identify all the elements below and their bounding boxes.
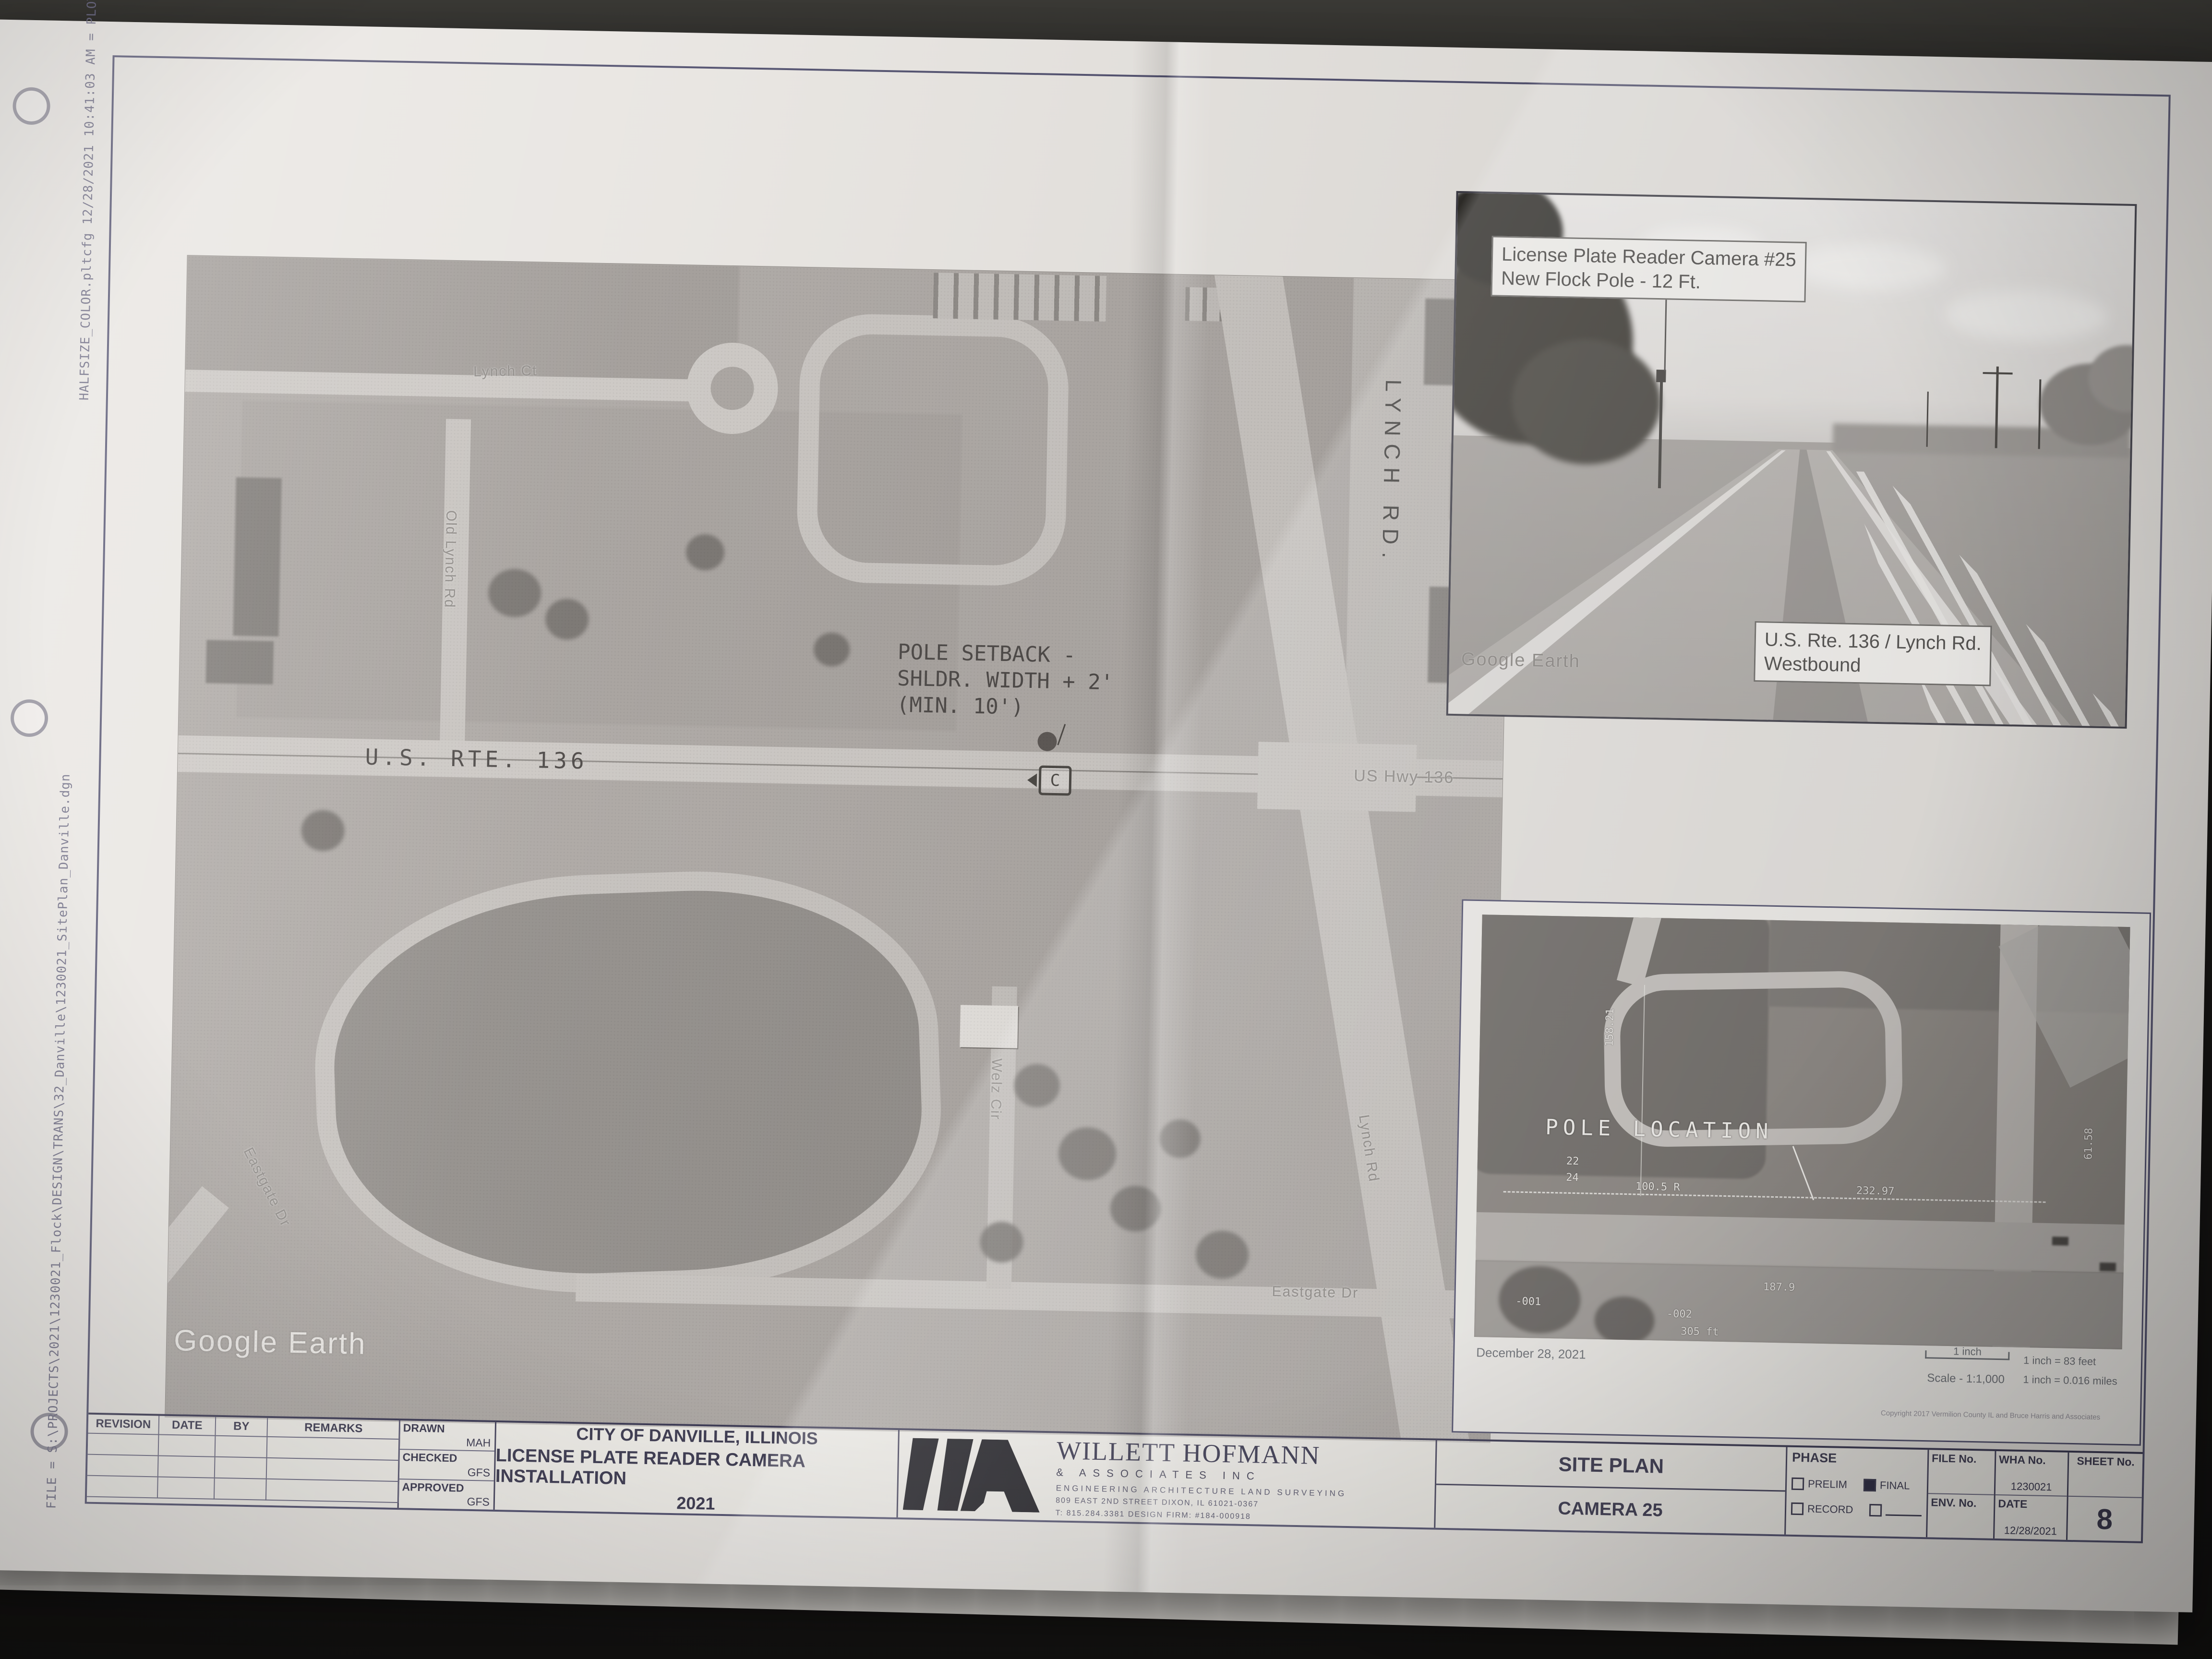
checked-value: GFS bbox=[468, 1466, 491, 1479]
dim-232: 232.97 bbox=[1856, 1185, 1895, 1198]
final-label: FINAL bbox=[1880, 1479, 1910, 1492]
dim-158: 158.21 bbox=[1604, 1008, 1617, 1046]
phase-row-1: PRELIM FINAL bbox=[1791, 1478, 1922, 1492]
sheet-title-block: SITE PLAN CAMERA 25 bbox=[1435, 1441, 1787, 1535]
drawn-label: DRAWN bbox=[403, 1421, 445, 1435]
camera-symbol: C bbox=[1027, 765, 1071, 796]
wha-date-block: WHA No. 1230021 DATE 12/28/2021 bbox=[1995, 1451, 2069, 1540]
env-no-label: ENV. No. bbox=[1931, 1496, 1976, 1509]
street-label-eastgate-diagonal: Eastgate Dr bbox=[240, 1145, 294, 1229]
other-blank-line bbox=[1886, 1505, 1922, 1516]
tree-cluster bbox=[1110, 1185, 1161, 1232]
rev-cell bbox=[215, 1457, 267, 1479]
rev-cell bbox=[159, 1435, 216, 1457]
camera-letter: C bbox=[1050, 771, 1060, 790]
street-label-us-rte-136: U.S. RTE. 136 bbox=[365, 744, 588, 774]
tree-cluster bbox=[1195, 1230, 1249, 1279]
flock-camera-head bbox=[1656, 370, 1666, 382]
signoff-block: DRAWN MAH CHECKED GFS APPROVED GFS bbox=[399, 1420, 496, 1510]
firm-address: 809 EAST 2ND STREET DIXON, IL 61021-0367 bbox=[1056, 1496, 1346, 1511]
drawn-value: MAH bbox=[466, 1436, 491, 1450]
date-value: 12/28/2021 bbox=[1995, 1524, 2066, 1538]
rev-header-revision: REVISION bbox=[88, 1415, 159, 1435]
road-eastgate-diagonal bbox=[165, 1186, 229, 1439]
sheet-no-value: 8 bbox=[2070, 1499, 2139, 1539]
approved-row: APPROVED GFS bbox=[399, 1479, 494, 1510]
firm-services: ENGINEERING ARCHITECTURE LAND SURVEYING bbox=[1056, 1483, 1346, 1498]
note-line-1: POLE SETBACK - bbox=[898, 639, 1114, 670]
file-no-label: FILE No. bbox=[1932, 1452, 1977, 1465]
firm-name: WILLETT HOFMANN bbox=[1057, 1436, 1348, 1471]
pole-setback-note: POLE SETBACK - SHLDR. WIDTH + 2' (MIN. 1… bbox=[896, 639, 1114, 722]
binder-hole bbox=[12, 87, 50, 125]
plan-sheet-paper: HALFSIZE_COLOR.pltcfg 12/28/2021 10:41:0… bbox=[0, 19, 2212, 1612]
street-label-eastgate: Eastgate Dr bbox=[1272, 1284, 1358, 1301]
dim-187: 187.9 bbox=[1763, 1281, 1795, 1294]
camera-lens-icon bbox=[1027, 773, 1037, 787]
project-line-3: 2021 bbox=[676, 1493, 715, 1514]
date-label: DATE bbox=[1998, 1497, 2027, 1510]
plot-stamp-text: HALFSIZE_COLOR.pltcfg 12/28/2021 10:41:0… bbox=[77, 26, 99, 400]
pole-leader bbox=[1792, 1146, 1815, 1200]
field-area bbox=[185, 255, 739, 381]
street-label-lynch-rd-vertical: LYNCH RD. bbox=[1377, 379, 1407, 566]
approved-label: APPROVED bbox=[402, 1480, 464, 1494]
scale-bar-label: 1 inch bbox=[1953, 1345, 1982, 1358]
project-line-1: CITY OF DANVILLE, ILLINOIS bbox=[576, 1424, 818, 1449]
rev-header-by: BY bbox=[216, 1417, 268, 1437]
dim-001: -001 bbox=[1515, 1296, 1541, 1308]
scale-text: Scale - 1:1,000 bbox=[1927, 1371, 2005, 1386]
location-line-2: Westbound bbox=[1764, 651, 1981, 680]
callout-leader bbox=[1664, 297, 1667, 371]
tree-cluster bbox=[980, 1221, 1024, 1263]
rev-cell bbox=[88, 1434, 159, 1456]
checked-row: CHECKED GFS bbox=[399, 1450, 494, 1481]
prelim-checkbox bbox=[1791, 1478, 1804, 1490]
binder-hole bbox=[10, 699, 48, 737]
loop-drive bbox=[796, 313, 1070, 587]
record-label: RECORD bbox=[1807, 1503, 1853, 1516]
sheet-no-block: SHEET No. 8 bbox=[2068, 1453, 2142, 1541]
env-no-cell: ENV. No. bbox=[1927, 1494, 1994, 1539]
tree-cluster bbox=[301, 810, 345, 852]
file-no-cell: FILE No. bbox=[1928, 1450, 1995, 1495]
sheet-subtitle: CAMERA 25 bbox=[1435, 1485, 1785, 1534]
firm-contact: T: 815.284.3381 DESIGN FIRM: #184-000918 bbox=[1055, 1509, 1346, 1524]
street-photo-inset: License Plate Reader Camera #25 New Floc… bbox=[1446, 191, 2137, 729]
scale-bar: 1 inch bbox=[1925, 1350, 2009, 1360]
rev-header-remarks: REMARKS bbox=[267, 1418, 400, 1440]
wha-no-cell: WHA No. 1230021 bbox=[1996, 1451, 2068, 1497]
project-title-block: CITY OF DANVILLE, ILLINOIS LICENSE PLATE… bbox=[495, 1422, 900, 1517]
cloud bbox=[1945, 289, 2109, 343]
cloud bbox=[1792, 242, 1947, 291]
sheet-title: SITE PLAN bbox=[1436, 1441, 1786, 1491]
file-env-block: FILE No. ENV. No. bbox=[1927, 1450, 1996, 1539]
dim-22: 22 bbox=[1566, 1155, 1579, 1168]
rev-cell bbox=[87, 1476, 158, 1499]
wha-no-label: WHA No. bbox=[1999, 1453, 2046, 1467]
south-field-loop bbox=[309, 864, 947, 1302]
date-cell: DATE 12/28/2021 bbox=[1995, 1495, 2067, 1540]
phase-row-2: RECORD bbox=[1791, 1503, 1922, 1517]
wha-logo-icon bbox=[903, 1438, 1048, 1513]
location-callout: U.S. Rte. 136 / Lynch Rd. Westbound bbox=[1754, 621, 1992, 686]
inset-copyright: Copyright 2017 Vermilion County IL and B… bbox=[1881, 1409, 2100, 1421]
rev-header-date: DATE bbox=[159, 1416, 216, 1436]
final-checkbox bbox=[1863, 1479, 1876, 1491]
revision-table: REVISION DATE BY REMARKS bbox=[87, 1415, 400, 1508]
dim-61: 61.58 bbox=[2082, 1128, 2095, 1160]
desk-surface: HALFSIZE_COLOR.pltcfg 12/28/2021 10:41:0… bbox=[0, 0, 2212, 1659]
rev-cell bbox=[266, 1479, 399, 1503]
dim-100-5: 100.5 R bbox=[1635, 1180, 1680, 1193]
drawing-border: Lynch Ct Old Lynch Rd U.S. RTE. 136 US H… bbox=[85, 55, 2171, 1543]
building bbox=[960, 1005, 1018, 1048]
phase-label: PHASE bbox=[1792, 1450, 1923, 1467]
pole-location-aerial: POLE LOCATION 158.21 22 24 100.5 R 232.9… bbox=[1474, 914, 2130, 1349]
vehicle bbox=[2100, 1262, 2116, 1272]
note-line-3: (MIN. 10') bbox=[896, 692, 1113, 722]
rev-cell bbox=[267, 1437, 400, 1461]
scale-feet: 1 inch = 83 feet bbox=[2023, 1354, 2096, 1368]
right-of-way-dashed-line bbox=[1503, 1191, 2046, 1203]
sheet-no-value-cell: 8 bbox=[2068, 1497, 2142, 1541]
utility-pole-crossarm bbox=[1983, 372, 2013, 374]
prelim-label: PRELIM bbox=[1808, 1478, 1847, 1491]
building bbox=[206, 640, 274, 685]
leader-line bbox=[1057, 724, 1066, 745]
google-earth-watermark: Google Earth bbox=[1461, 649, 1581, 672]
tree-cluster bbox=[1014, 1064, 1060, 1108]
rev-cell bbox=[158, 1477, 215, 1499]
pole-marker bbox=[1037, 732, 1057, 751]
wha-no-value: 1230021 bbox=[1996, 1480, 2067, 1494]
inset-date: December 28, 2021 bbox=[1476, 1345, 1586, 1362]
firm-text: WILLETT HOFMANN & ASSOCIATES INC ENGINEE… bbox=[1055, 1436, 1347, 1524]
street-label-us-hwy-136: US Hwy 136 bbox=[1354, 767, 1455, 787]
scale-miles: 1 inch = 0.016 miles bbox=[2023, 1373, 2117, 1388]
pole-location-label: POLE LOCATION bbox=[1545, 1115, 1773, 1144]
dim-305: 305 ft bbox=[1681, 1325, 1719, 1338]
dim-002: -002 bbox=[1667, 1308, 1692, 1321]
street-label-lynch-ct: Lynch Ct bbox=[473, 363, 538, 380]
drawn-row: DRAWN MAH bbox=[400, 1420, 495, 1452]
rev-cell bbox=[216, 1436, 268, 1458]
firm-block: WILLETT HOFMANN & ASSOCIATES INC ENGINEE… bbox=[898, 1430, 1437, 1527]
approved-value: GFS bbox=[467, 1495, 490, 1509]
street-label-old-lynch-rd: Old Lynch Rd bbox=[441, 510, 459, 608]
sheet-no-cell: SHEET No. bbox=[2068, 1453, 2143, 1498]
file-path-text: FILE = S:\PROJECTS\2021\1230021_Flock\DE… bbox=[44, 904, 70, 1509]
location-line-1: U.S. Rte. 136 / Lynch Rd. bbox=[1764, 627, 1982, 656]
parking-lot bbox=[933, 273, 1106, 322]
building bbox=[233, 477, 281, 637]
checked-label: CHECKED bbox=[402, 1451, 457, 1465]
note-line-2: SHLDR. WIDTH + 2' bbox=[897, 665, 1113, 696]
rev-cell bbox=[87, 1455, 159, 1478]
sheet-no-label: SHEET No. bbox=[2077, 1455, 2135, 1468]
street-label-welz-cir: Welz Cir bbox=[987, 1058, 1004, 1120]
rev-cell bbox=[158, 1456, 216, 1478]
phase-block: PHASE PRELIM FINAL RECORD bbox=[1786, 1447, 1929, 1538]
camera-callout: License Plate Reader Camera #25 New Floc… bbox=[1491, 236, 1806, 302]
rev-cell bbox=[215, 1479, 267, 1501]
rev-cell bbox=[267, 1458, 400, 1482]
other-checkbox bbox=[1869, 1504, 1882, 1516]
google-earth-watermark: Google Earth bbox=[174, 1323, 367, 1361]
aerial-site-plan: Lynch Ct Old Lynch Rd U.S. RTE. 136 US H… bbox=[165, 255, 1512, 1443]
project-line-2: LICENSE PLATE READER CAMERA INSTALLATION bbox=[495, 1445, 898, 1494]
dim-24: 24 bbox=[1566, 1172, 1579, 1184]
vehicle bbox=[2052, 1237, 2068, 1246]
record-checkbox bbox=[1791, 1503, 1803, 1515]
pole-location-inset: POLE LOCATION 158.21 22 24 100.5 R 232.9… bbox=[1452, 899, 2151, 1445]
tree-cluster bbox=[1058, 1127, 1117, 1180]
tree-cluster bbox=[1159, 1119, 1201, 1158]
